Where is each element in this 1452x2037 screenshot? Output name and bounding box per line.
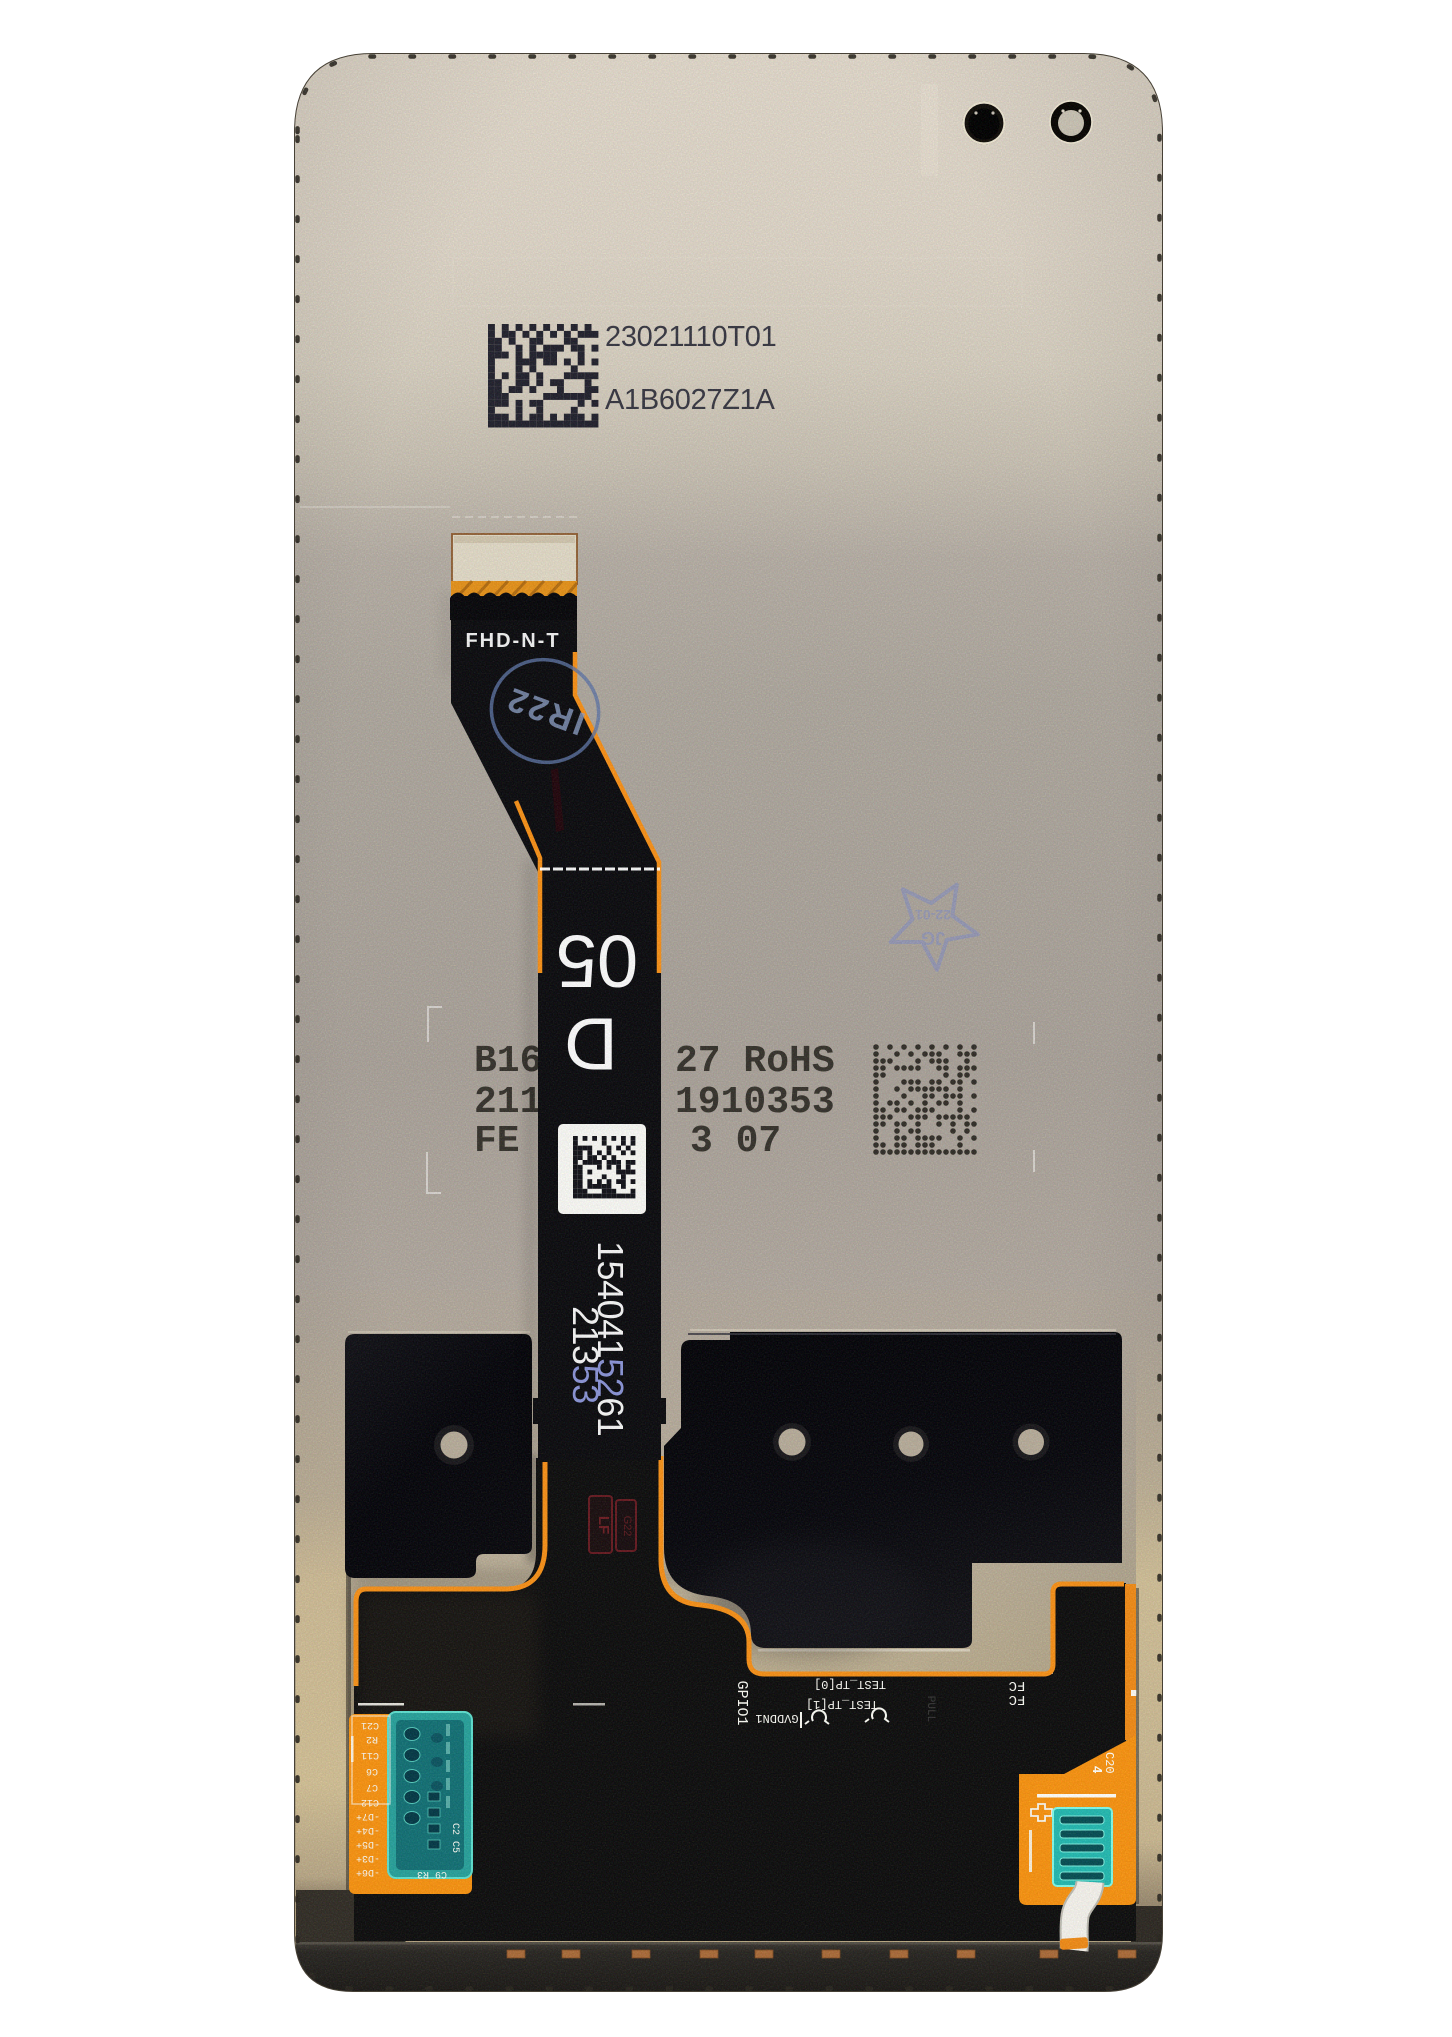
svg-text:G22: G22 (621, 1516, 633, 1537)
svg-text:C12: C12 (361, 1796, 379, 1807)
svg-text:3 07: 3 07 (690, 1120, 781, 1163)
svg-text:D: D (564, 1003, 617, 1086)
svg-text:C6: C6 (366, 1765, 378, 1776)
svg-text:C21: C21 (361, 1719, 379, 1730)
svg-text:LF: LF (595, 1516, 612, 1534)
svg-text:C2 C5: C2 C5 (449, 1823, 460, 1853)
svg-text:-D6+: -D6+ (356, 1866, 380, 1877)
svg-text:TEST_TP[1]: TEST_TP[1] (806, 1697, 878, 1711)
svg-text:FC: FC (1009, 1677, 1026, 1693)
svg-text:FE: FE (474, 1120, 520, 1163)
svg-text:-D4+: -D4+ (356, 1824, 380, 1835)
svg-text:C9 R3: C9 R3 (417, 1868, 447, 1879)
svg-text:R2: R2 (366, 1733, 378, 1744)
svg-text:C7: C7 (366, 1781, 378, 1792)
svg-text:FHD-N-T: FHD-N-T (465, 630, 560, 652)
svg-text:05: 05 (556, 920, 638, 1003)
svg-text:GPIO1: GPIO1 (733, 1680, 750, 1725)
svg-text:TEST_TP[0]: TEST_TP[0] (814, 1677, 886, 1691)
svg-text:JG: JG (921, 928, 945, 948)
svg-text:-D7+: -D7+ (356, 1810, 380, 1821)
svg-text:27 RoHS: 27 RoHS (675, 1040, 835, 1083)
svg-text:PULL: PULL (924, 1696, 936, 1722)
svg-text:-D5+: -D5+ (356, 1838, 380, 1849)
svg-text:4: 4 (1090, 1766, 1105, 1774)
svg-text:C11: C11 (361, 1749, 379, 1760)
svg-text:GVDDN1: GVDDN1 (755, 1711, 798, 1725)
svg-text:-D3+: -D3+ (356, 1852, 380, 1863)
svg-text:22-01: 22-01 (915, 907, 951, 923)
svg-text:FC: FC (1009, 1691, 1026, 1707)
svg-text:A1B6027Z1A: A1B6027Z1A (605, 384, 775, 416)
svg-text:21353: 21353 (565, 1306, 606, 1404)
svg-text:1910353: 1910353 (675, 1081, 835, 1124)
svg-text:23021110T01: 23021110T01 (605, 321, 776, 353)
